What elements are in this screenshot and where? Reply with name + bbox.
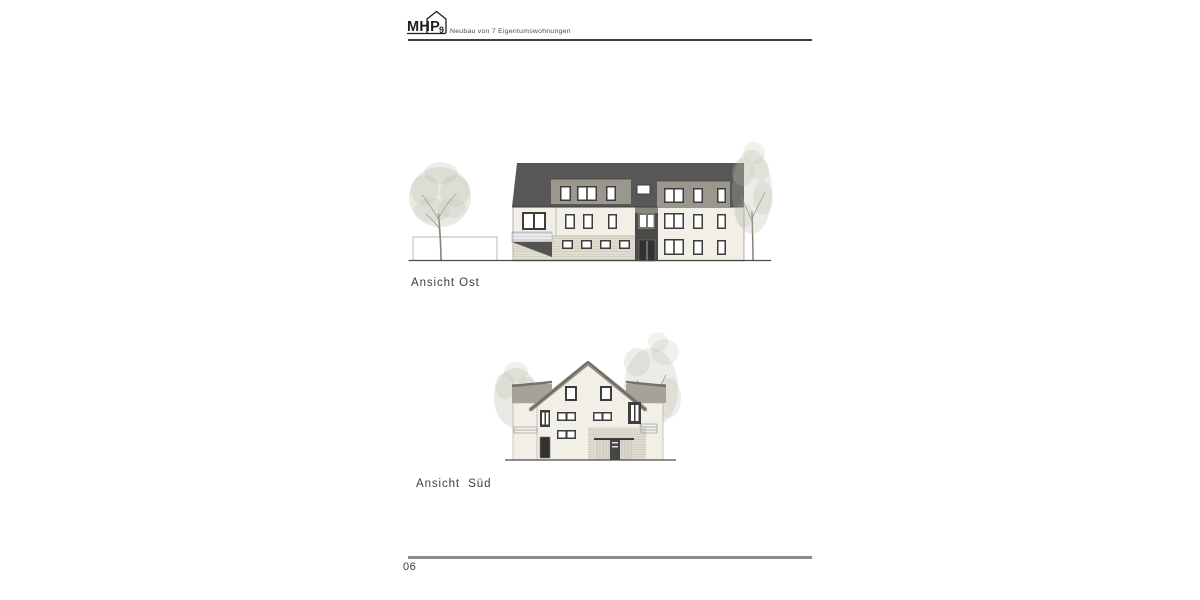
footer-rule — [408, 556, 812, 559]
company-logo: MHP 9 — [405, 8, 465, 40]
dark-window-left — [540, 410, 550, 427]
garage — [588, 427, 646, 460]
dark-door-left — [540, 437, 550, 458]
caption-south: Ansicht Süd — [416, 478, 491, 490]
upper-windows-left — [565, 214, 617, 229]
ground-window-south — [557, 430, 576, 439]
caption-east: Ansicht Ost — [411, 277, 480, 289]
header-rule — [408, 39, 812, 41]
balcony-railing — [512, 232, 552, 242]
east-elevation-drawing — [408, 140, 772, 262]
side-wall-left — [513, 403, 538, 460]
south-elevation-drawing — [490, 338, 690, 464]
project-subtitle: Neubau von 7 Eigentumswohnungen — [450, 28, 571, 35]
dark-window-right — [628, 402, 641, 424]
dormer-right — [657, 181, 730, 207]
logo-text: MHP — [407, 19, 440, 35]
roof-window — [637, 185, 650, 194]
page-number: 06 — [403, 561, 416, 573]
building-east — [512, 163, 744, 261]
fence-outline — [413, 237, 497, 261]
entrance — [635, 207, 658, 261]
plan-sheet: MHP 9 Neubau von 7 Eigentumswohnungen — [0, 0, 1200, 600]
dormer-left — [551, 179, 631, 204]
